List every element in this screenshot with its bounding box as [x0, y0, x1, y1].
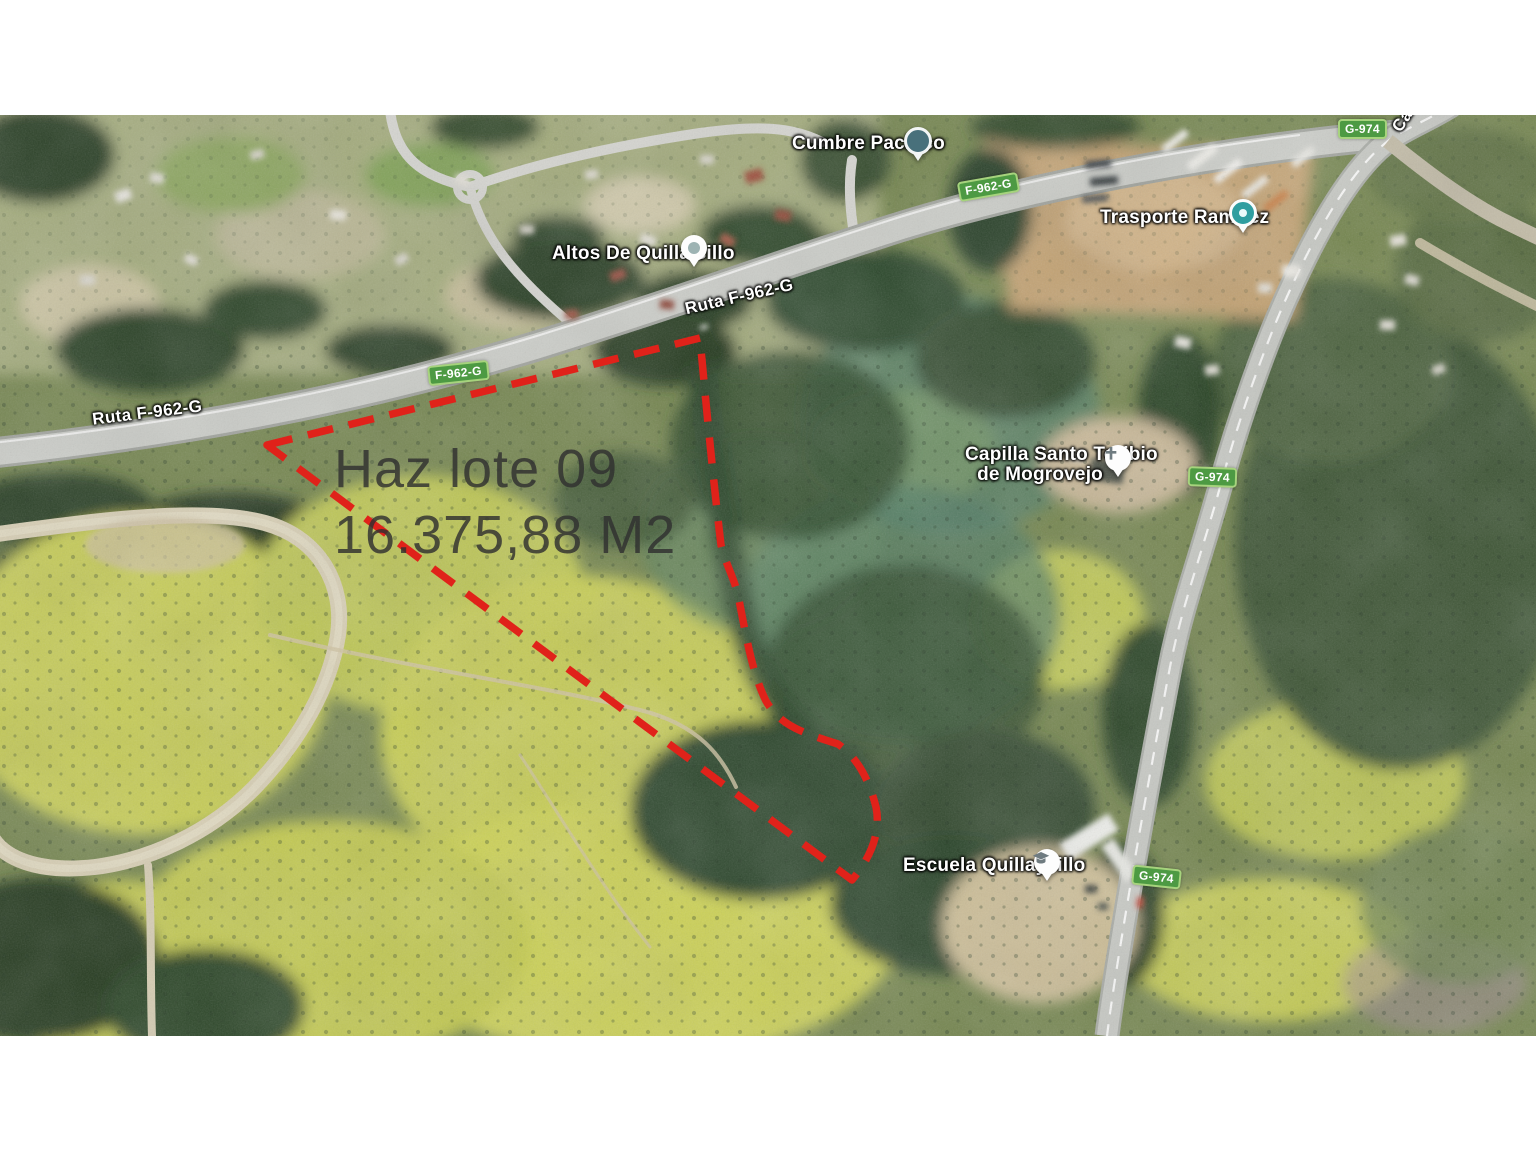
pin-escuela[interactable]: [1032, 849, 1062, 881]
pin-dot: [688, 242, 700, 254]
satellite-imagery: [0, 115, 1536, 1036]
pin-head: [904, 127, 932, 155]
lot-area: 16.375,88 M2: [334, 503, 676, 569]
pin-capilla[interactable]: [1103, 445, 1133, 477]
route-shield-g974-top: G-974: [1338, 119, 1387, 139]
satellite-map[interactable]: Haz lote 09 16.375,88 M2 Ruta F-962-G Ru…: [0, 115, 1536, 1036]
route-shield-g974-mid: G-974: [1188, 466, 1238, 488]
poi-label-capilla-line1: Capilla Santo Toribio: [965, 445, 1103, 465]
pin-tail: [1112, 468, 1124, 477]
pin-trasporte-ramirez[interactable]: [1228, 199, 1258, 233]
pin-cumbre-pacifico[interactable]: [903, 127, 933, 161]
pin-altos-de-quillaicillo[interactable]: [679, 235, 709, 267]
top-margin: [0, 0, 1536, 115]
screenshot-page: Haz lote 09 16.375,88 M2 Ruta F-962-G Ru…: [0, 0, 1536, 1152]
pin-tail: [1237, 224, 1249, 233]
pin-tail: [688, 258, 700, 267]
lot-title: Haz lote 09: [334, 437, 676, 503]
pin-tail: [1041, 872, 1053, 881]
pin-dot: [1239, 209, 1247, 217]
bottom-margin: [0, 1036, 1536, 1152]
lot-annotation: Haz lote 09 16.375,88 M2: [334, 437, 676, 569]
pin-head: [1229, 199, 1257, 227]
pin-tail: [912, 152, 924, 161]
poi-label-capilla-line2: de Mogrovejo: [965, 465, 1103, 485]
poi-label-capilla[interactable]: Capilla Santo Toribio de Mogrovejo: [965, 445, 1103, 485]
